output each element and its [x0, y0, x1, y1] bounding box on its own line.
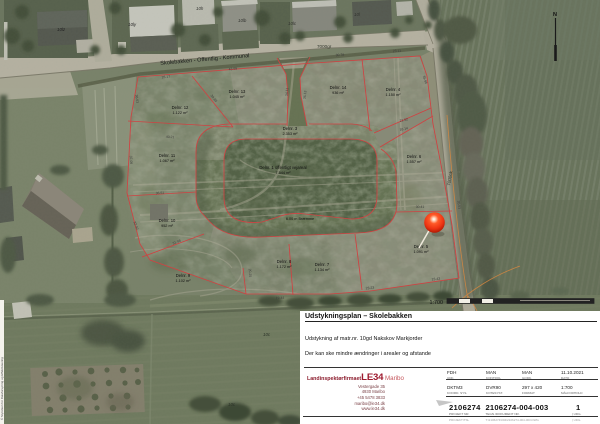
svg-text:30.41: 30.41 — [416, 205, 425, 209]
svg-text:Delnr. 14: Delnr. 14 — [330, 85, 347, 90]
svg-text:Delnr. 10: Delnr. 10 — [159, 218, 176, 223]
svg-text:1.134 m²: 1.134 m² — [315, 268, 331, 272]
svg-text:20.25: 20.25 — [248, 269, 253, 278]
svg-text:Delnr. 12: Delnr. 12 — [172, 105, 189, 110]
svg-text:1.091 m²: 1.091 m² — [414, 250, 430, 254]
svg-text:1.067 m²: 1.067 m² — [160, 159, 176, 163]
svg-text:10c: 10c — [263, 332, 271, 337]
svg-text:6.00 m Bræmme: 6.00 m Bræmme — [286, 217, 314, 221]
svg-text:Delnr. 7: Delnr. 7 — [315, 262, 330, 267]
svg-text:10lz: 10lz — [57, 27, 66, 32]
svg-text:34.11: 34.11 — [285, 88, 290, 97]
svg-text:40.21: 40.21 — [166, 135, 175, 140]
svg-text:1:700: 1:700 — [430, 300, 444, 306]
svg-text:1.557 m²: 1.557 m² — [407, 160, 423, 164]
svg-text:Delnr. 1 offentligt vejareal: Delnr. 1 offentligt vejareal — [259, 165, 306, 170]
svg-text:36.51: 36.51 — [156, 191, 165, 195]
svg-text:30.78: 30.78 — [336, 53, 345, 58]
svg-text:936 m²: 936 m² — [332, 91, 345, 95]
svg-text:10ly: 10ly — [128, 22, 137, 27]
svg-text:Delnr. 3: Delnr. 3 — [283, 126, 298, 131]
svg-text:Delnr. 6: Delnr. 6 — [407, 154, 422, 159]
svg-text:7000gr: 7000gr — [317, 44, 332, 49]
svg-text:Delnr. 8: Delnr. 8 — [277, 259, 292, 264]
svg-text:© Styrelsen for Dataforsyning: © Styrelsen for Dataforsyning og Effekti… — [0, 357, 4, 420]
svg-text:19.44: 19.44 — [276, 296, 285, 300]
svg-text:2.353 m²: 2.353 m² — [283, 132, 299, 136]
svg-text:1.045 m²: 1.045 m² — [230, 95, 246, 99]
svg-text:1.122 m²: 1.122 m² — [173, 111, 189, 115]
svg-text:7.544 m²: 7.544 m² — [276, 171, 292, 175]
svg-text:Delnr. 11: Delnr. 11 — [159, 153, 176, 158]
svg-text:23.23: 23.23 — [366, 286, 375, 291]
svg-text:37.09: 37.09 — [129, 156, 133, 165]
svg-text:1.150 m²: 1.150 m² — [386, 93, 402, 97]
svg-text:N: N — [553, 12, 557, 18]
svg-text:10c: 10c — [228, 402, 236, 407]
svg-text:1.102 m²: 1.102 m² — [176, 279, 192, 283]
svg-text:Delnr. 9: Delnr. 9 — [176, 273, 191, 278]
svg-text:952 m²: 952 m² — [161, 224, 174, 228]
svg-text:Delnr. 13: Delnr. 13 — [229, 89, 246, 94]
svg-text:1.172 m²: 1.172 m² — [277, 265, 293, 269]
svg-text:23.11: 23.11 — [393, 49, 402, 54]
svg-text:Delnr. 4: Delnr. 4 — [386, 87, 401, 92]
